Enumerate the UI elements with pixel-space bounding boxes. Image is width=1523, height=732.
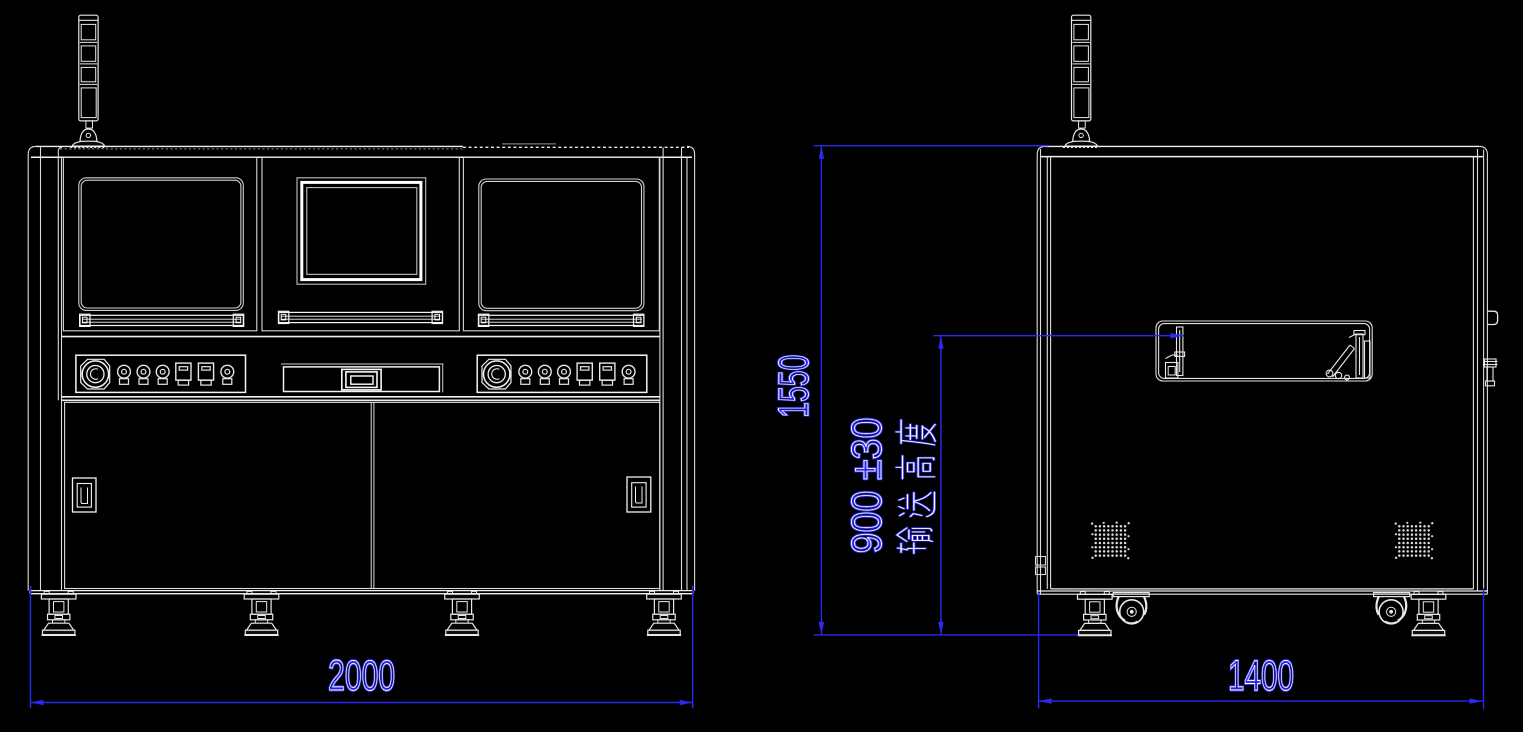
svg-text:900 ±30: 900 ±30 [843, 418, 891, 554]
svg-text:1550: 1550 [770, 355, 818, 418]
svg-text:1400: 1400 [1228, 652, 1294, 700]
svg-text:2000: 2000 [328, 652, 395, 700]
